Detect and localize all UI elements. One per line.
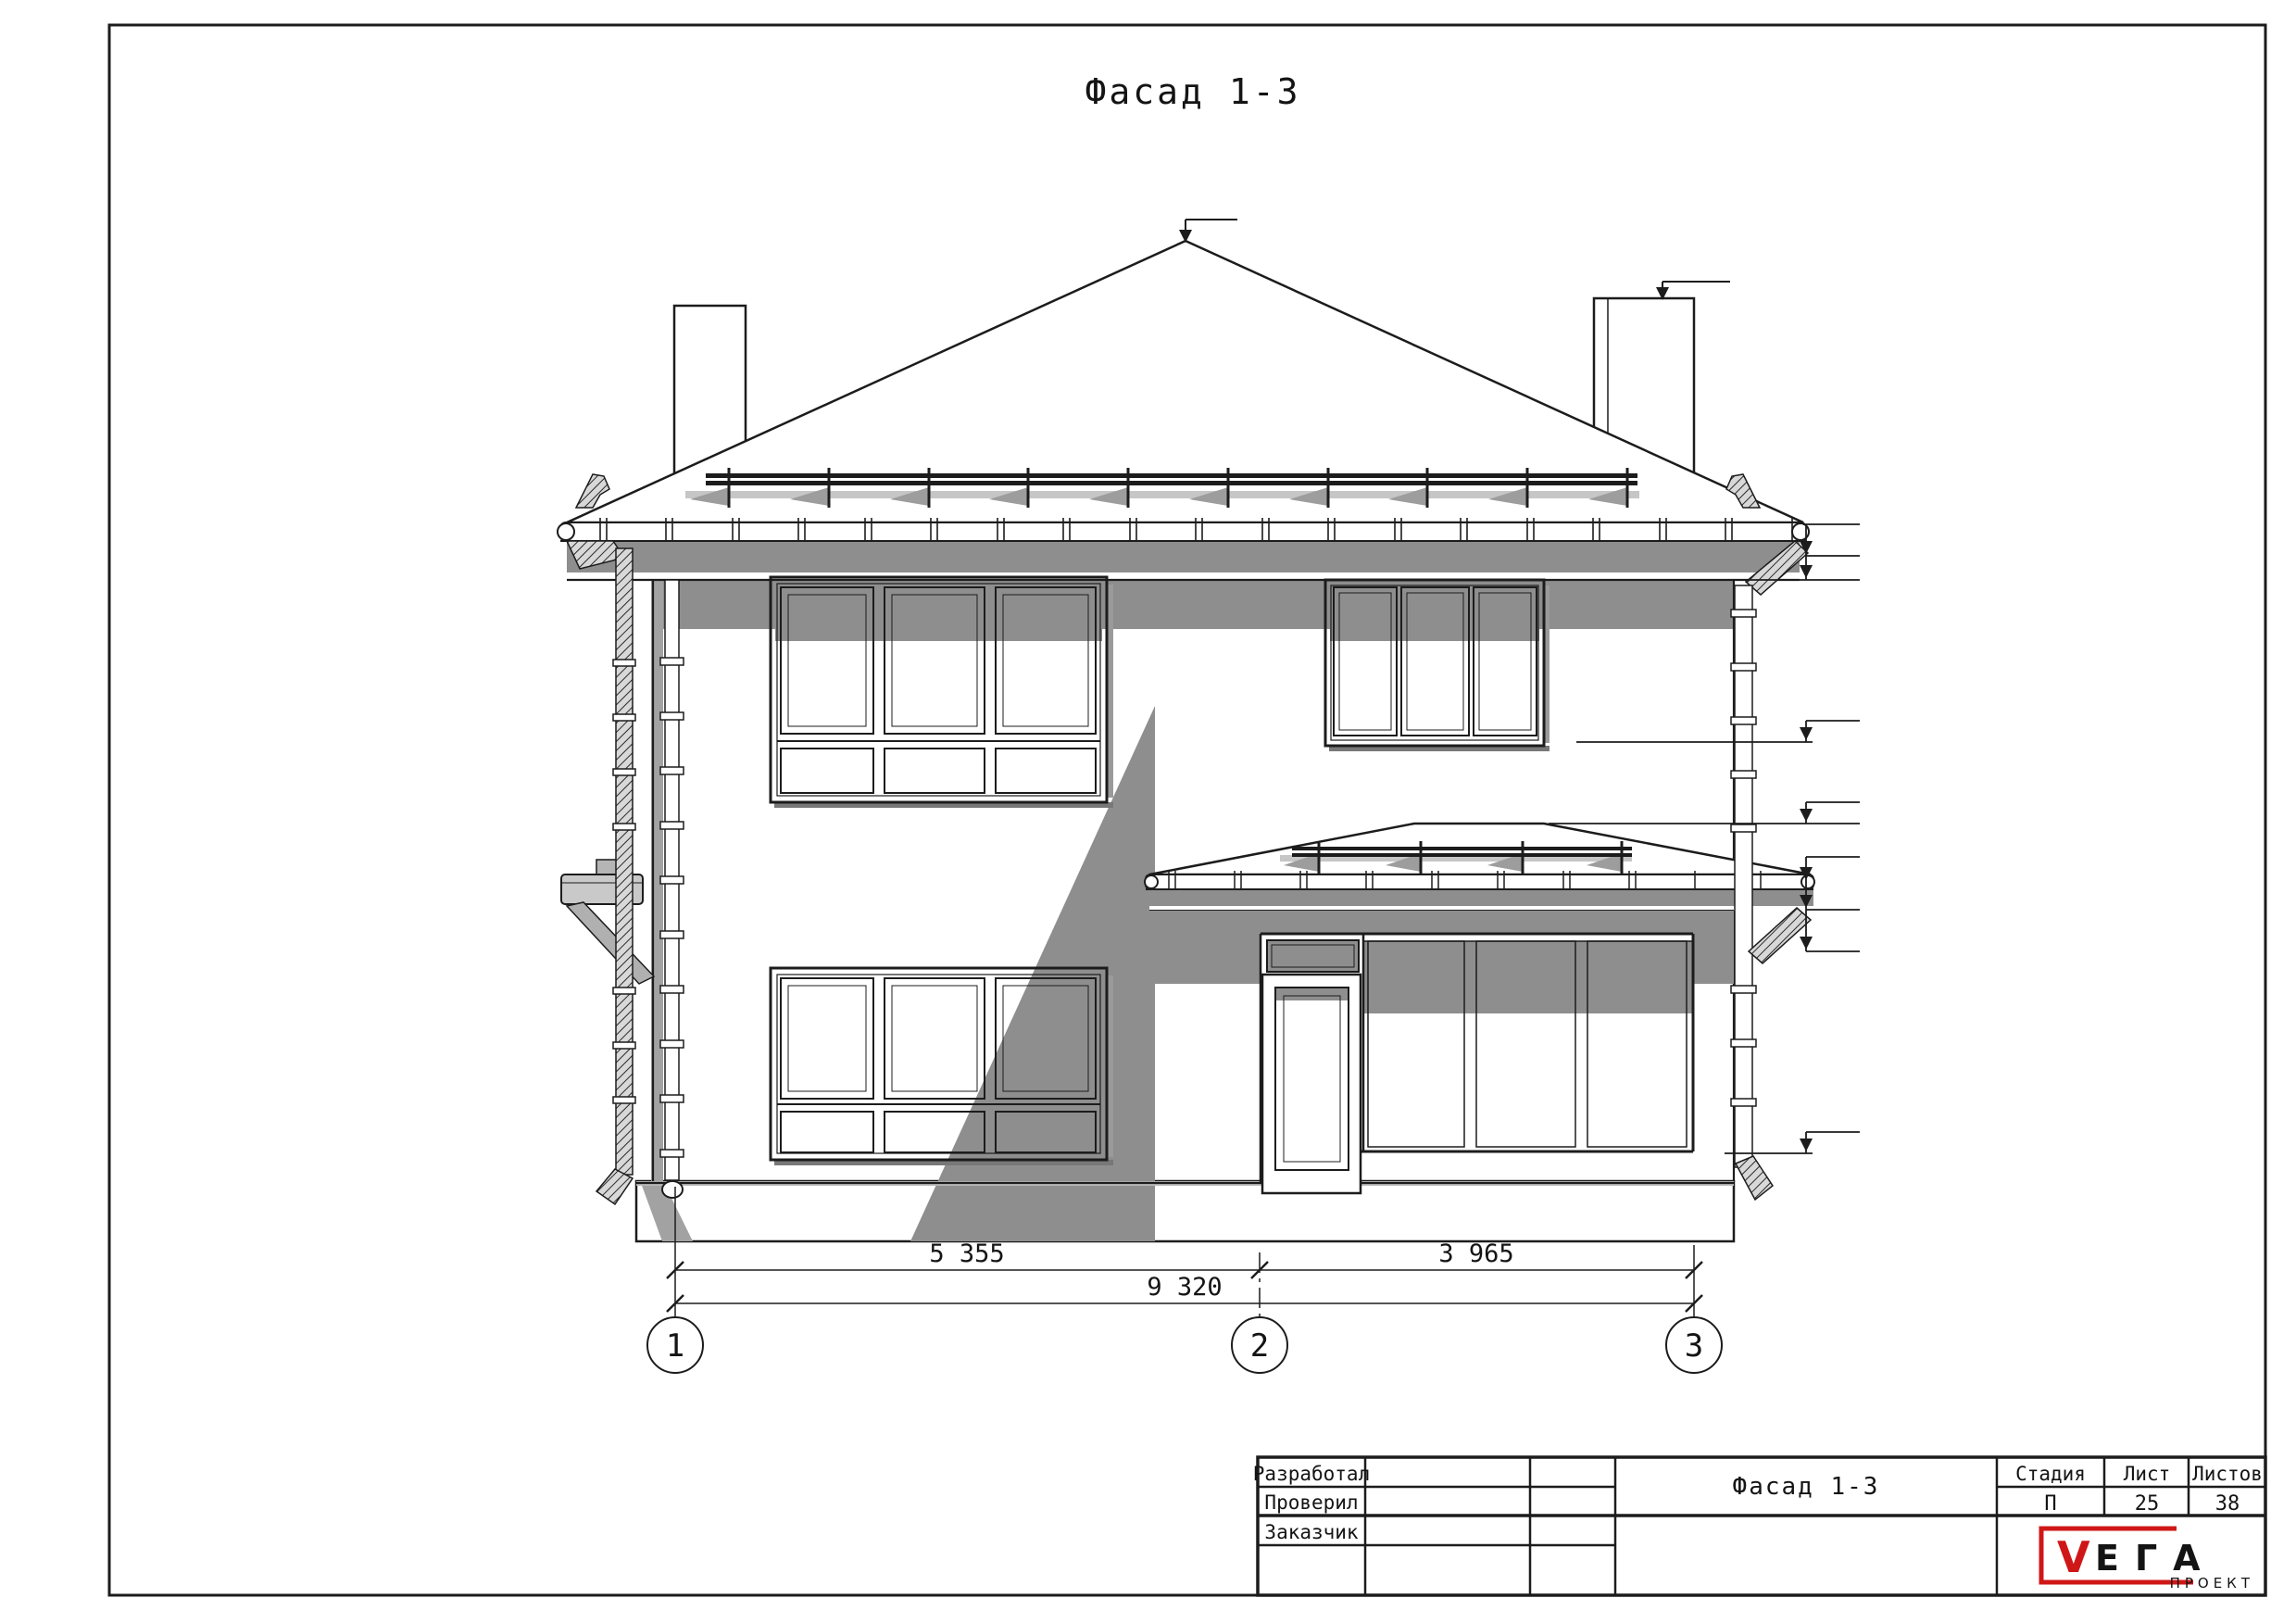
dim-label-1-2: 5 355 xyxy=(929,1239,1004,1268)
titleblock-row-checked: Проверил xyxy=(1264,1491,1358,1514)
vega-logo-ega: ЕГА xyxy=(2095,1538,2216,1579)
porch-door xyxy=(1262,975,1361,1193)
titleblock-row-developed: Разработал xyxy=(1253,1463,1370,1485)
drain-outlet-icon xyxy=(662,1181,683,1198)
titleblock-doc-title: Фасад 1-3 xyxy=(1733,1473,1880,1501)
titleblock-stage-header: Стадия xyxy=(2015,1463,2086,1485)
axis-label-2: 2 xyxy=(1250,1327,1269,1365)
vega-logo-subtitle: ПРОЕКТ xyxy=(2170,1575,2254,1592)
axis-label-3: 3 xyxy=(1685,1327,1703,1365)
titleblock-sheets-value: 38 xyxy=(2215,1492,2240,1516)
titleblock-sheet-value: 25 xyxy=(2135,1492,2160,1516)
gutter-end-cap-icon xyxy=(558,523,574,540)
drawing-sheet: 5 355 3 965 9 320 1 2 3 Фасад 1-3 Разраб… xyxy=(0,0,2296,1623)
axis-label-1: 1 xyxy=(666,1327,684,1365)
titleblock-sheet-header: Лист xyxy=(2124,1463,2171,1485)
titleblock-stage-value: П xyxy=(2044,1492,2056,1516)
dim-label-2-3: 3 965 xyxy=(1438,1239,1513,1268)
title-block: Разработал Проверил Заказчик Фасад 1-3 С… xyxy=(1253,1457,2265,1595)
vega-logo-v: V xyxy=(2057,1532,2090,1582)
titleblock-sheets-header: Листов xyxy=(2192,1463,2263,1485)
titleblock-row-client: Заказчик xyxy=(1264,1521,1359,1543)
page-title: Фасад 1-3 xyxy=(1085,71,1301,112)
plinth xyxy=(636,1181,1734,1241)
facade-elevation-drawing: 5 355 3 965 9 320 1 2 3 Фасад 1-3 Разраб… xyxy=(0,0,2296,1623)
dim-label-overall: 9 320 xyxy=(1147,1273,1222,1302)
